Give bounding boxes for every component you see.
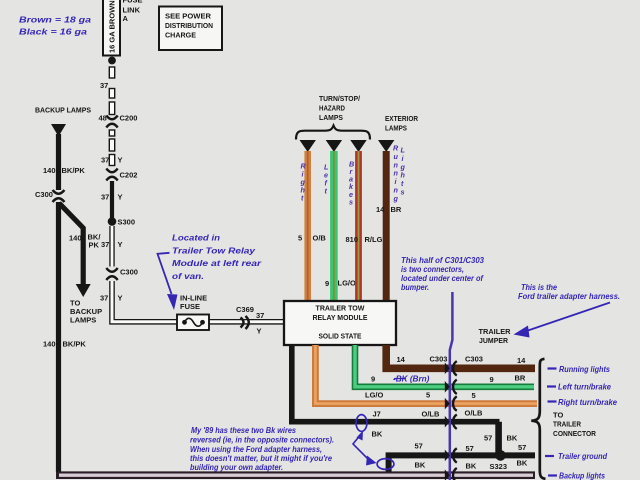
- svg-text:TO: TO: [553, 411, 563, 420]
- svg-text:C200: C200: [120, 114, 138, 123]
- svg-text:SEE POWER: SEE POWER: [165, 12, 212, 21]
- svg-text:37: 37: [100, 294, 108, 303]
- svg-text:BK: BK: [507, 434, 518, 443]
- svg-text:BK: BK: [517, 459, 528, 468]
- svg-text:LAMPS: LAMPS: [319, 113, 343, 122]
- svg-text:TURN/STOP/: TURN/STOP/: [319, 94, 361, 103]
- svg-text:t: t: [325, 187, 328, 196]
- svg-text:Left turn/brake: Left turn/brake: [558, 383, 611, 392]
- svg-text:R/LG: R/LG: [365, 235, 383, 244]
- svg-text:5: 5: [472, 391, 476, 400]
- svg-text:Y: Y: [118, 294, 123, 303]
- svg-text:of van.: of van.: [172, 272, 204, 281]
- svg-text:5: 5: [426, 391, 430, 400]
- svg-text:Y: Y: [257, 327, 262, 336]
- svg-text:Brown = 18 ga: Brown = 18 ga: [19, 16, 92, 25]
- svg-text:This is the: This is the: [521, 283, 557, 292]
- svg-text:CHARGE: CHARGE: [165, 31, 196, 40]
- svg-text:BK/PK: BK/PK: [62, 166, 86, 175]
- svg-text:FUSE: FUSE: [123, 0, 143, 5]
- svg-text:37: 37: [100, 81, 108, 90]
- svg-text:Y: Y: [118, 240, 123, 249]
- svg-text:bumper.: bumper.: [401, 283, 429, 292]
- svg-text:BK: BK: [372, 430, 383, 439]
- svg-text:Black = 16 ga: Black = 16 ga: [19, 28, 88, 37]
- svg-text:9: 9: [325, 279, 329, 288]
- svg-text:48: 48: [99, 114, 107, 123]
- svg-text:LG/O: LG/O: [338, 279, 356, 288]
- svg-text:CONNECTOR: CONNECTOR: [553, 429, 597, 438]
- svg-text:140: 140: [43, 340, 56, 349]
- svg-text:RELAY MODULE: RELAY MODULE: [313, 313, 368, 322]
- svg-text:t: t: [301, 194, 304, 203]
- svg-text:JUMPER: JUMPER: [479, 336, 509, 345]
- svg-text:Located in: Located in: [172, 234, 220, 243]
- svg-text:LAMPS: LAMPS: [70, 316, 96, 325]
- svg-text:This half of C301/C303: This half of C301/C303: [401, 256, 484, 265]
- svg-text:140: 140: [69, 234, 82, 243]
- svg-text:O/B: O/B: [313, 234, 327, 243]
- svg-text:LG/O: LG/O: [365, 391, 383, 400]
- svg-text:SOLID STATE: SOLID STATE: [319, 332, 362, 341]
- svg-text:TRAILER: TRAILER: [479, 327, 512, 336]
- svg-text:9: 9: [371, 375, 375, 384]
- svg-text:building your own adapter.: building your own adapter.: [190, 463, 283, 472]
- svg-text:EXTERIOR: EXTERIOR: [385, 114, 418, 123]
- svg-text:140: 140: [43, 166, 56, 175]
- svg-text:s: s: [401, 188, 405, 197]
- svg-text:BACKUP LAMPS: BACKUP LAMPS: [35, 106, 91, 115]
- svg-text:O/LB: O/LB: [465, 409, 483, 418]
- svg-text:37: 37: [101, 240, 109, 249]
- svg-text:Running lights: Running lights: [559, 365, 610, 374]
- svg-text:Y: Y: [118, 193, 123, 202]
- svg-text:Backup lights: Backup lights: [559, 472, 605, 480]
- svg-text:TRAILER: TRAILER: [553, 420, 582, 429]
- svg-text:S300: S300: [118, 218, 136, 227]
- svg-text:C300: C300: [35, 190, 53, 199]
- svg-text:is two connectors,: is two connectors,: [401, 265, 464, 274]
- svg-text:FUSE: FUSE: [180, 302, 200, 311]
- svg-text:C369: C369: [236, 305, 254, 314]
- svg-text:16 GA BROWN: 16 GA BROWN: [108, 0, 117, 53]
- svg-text:DISTRIBUTION: DISTRIBUTION: [165, 21, 213, 30]
- svg-text:My '89 has these two Bk wires: My '89 has these two Bk wires: [191, 426, 296, 435]
- svg-text:C202: C202: [120, 171, 138, 180]
- svg-text:C303: C303: [465, 355, 483, 364]
- svg-text:g: g: [393, 194, 399, 203]
- svg-text:C303: C303: [430, 355, 448, 364]
- svg-text:C300: C300: [120, 268, 138, 277]
- svg-text:5: 5: [298, 234, 302, 243]
- svg-text:LAMPS: LAMPS: [385, 124, 407, 133]
- svg-text:57: 57: [466, 444, 474, 453]
- svg-text:BR: BR: [391, 205, 402, 214]
- svg-text:TRAILER TOW: TRAILER TOW: [316, 304, 366, 313]
- svg-text:When using the Ford adapter ha: When using the Ford adapter harness,: [190, 445, 322, 454]
- svg-text:14: 14: [397, 355, 406, 364]
- svg-text:J7: J7: [373, 410, 381, 419]
- svg-text:37: 37: [101, 193, 109, 202]
- svg-text:Ford trailer adapter harness.: Ford trailer adapter harness.: [518, 292, 620, 301]
- svg-text:37: 37: [101, 156, 109, 165]
- svg-text:BK/PK: BK/PK: [63, 340, 87, 349]
- svg-text:Module at left rear: Module at left rear: [172, 259, 262, 268]
- svg-text:BK: BK: [415, 461, 426, 470]
- svg-text:810: 810: [346, 235, 359, 244]
- svg-text:Trailer ground: Trailer ground: [558, 452, 608, 461]
- svg-text:reversed (ie, in the opposite: reversed (ie, in the opposite connectors…: [190, 436, 334, 445]
- svg-text:BR: BR: [515, 374, 526, 383]
- svg-text:14: 14: [517, 356, 526, 365]
- svg-text:9: 9: [490, 375, 494, 384]
- svg-text:s: s: [349, 197, 353, 206]
- svg-text:37: 37: [256, 311, 264, 320]
- svg-text:S323: S323: [490, 462, 508, 471]
- svg-text:Right turn/brake: Right turn/brake: [558, 398, 617, 407]
- svg-text:HAZARD: HAZARD: [319, 104, 345, 113]
- svg-text:Trailer Tow Relay: Trailer Tow Relay: [172, 247, 256, 256]
- svg-text:this doesn't matter, but it mi: this doesn't matter, but it might if you…: [190, 454, 332, 463]
- svg-text:BK: BK: [466, 462, 477, 471]
- svg-text:O/LB: O/LB: [422, 410, 440, 419]
- svg-text:57: 57: [415, 442, 423, 451]
- svg-text:Y: Y: [118, 156, 123, 165]
- svg-text:located under center of: located under center of: [401, 274, 484, 283]
- svg-text:57: 57: [518, 443, 526, 452]
- svg-text:PK: PK: [89, 241, 100, 250]
- svg-text:57: 57: [484, 434, 492, 443]
- svg-text:A: A: [123, 14, 129, 23]
- svg-text:14: 14: [376, 205, 385, 214]
